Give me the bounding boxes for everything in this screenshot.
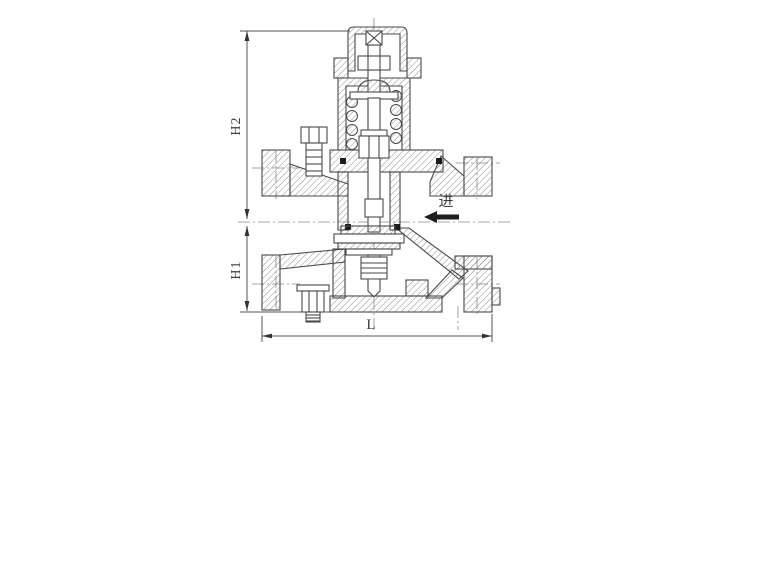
stem-nut-upper [359, 136, 389, 158]
bottom-cover [330, 280, 442, 312]
bottom-cover-plate [330, 296, 442, 312]
lock-nut [358, 56, 390, 70]
dimension-l [262, 314, 492, 342]
dim-l-label: L [366, 317, 375, 333]
valve-technical-drawing: H2 H1 L 进 [0, 0, 778, 588]
bottom-bolt [297, 285, 329, 322]
lower-stem [361, 255, 387, 297]
dim-h1-label: H1 [229, 260, 244, 279]
flow-direction [424, 211, 459, 223]
bolt-head [301, 127, 327, 143]
flange-left-lower [262, 255, 280, 310]
flange-right-upper [464, 157, 492, 196]
drawing-page: H2 H1 L 进 [0, 0, 778, 588]
flange-left-upper [262, 150, 290, 196]
piston-window [365, 199, 383, 217]
stem-tip [368, 279, 380, 297]
flow-arrow-icon [424, 211, 459, 223]
dim-h2-label: H2 [229, 116, 244, 135]
flange-right-lower [464, 256, 492, 312]
